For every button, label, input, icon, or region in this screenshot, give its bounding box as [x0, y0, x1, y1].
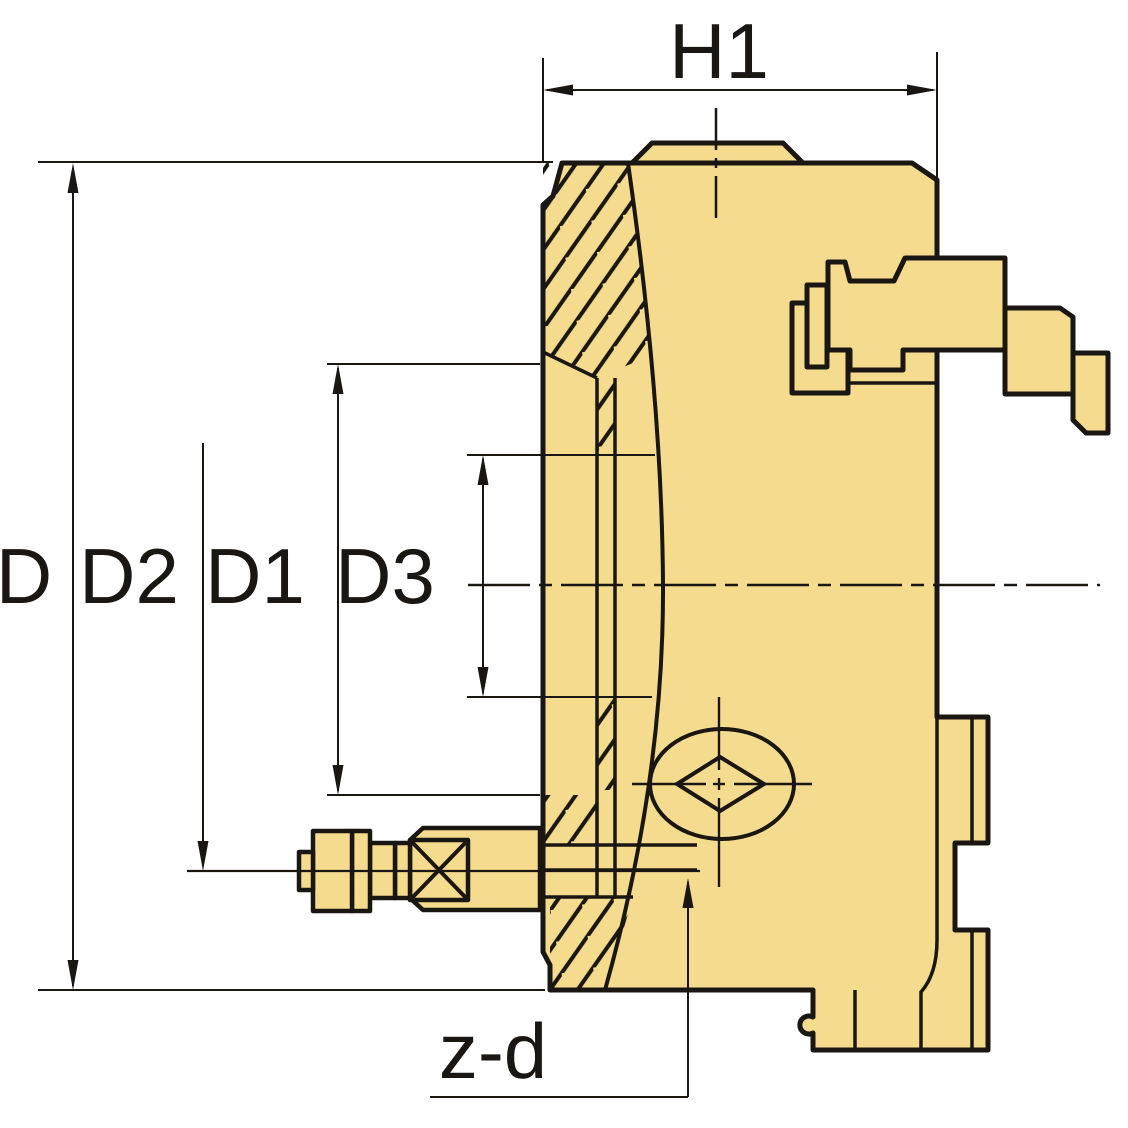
hatch-strip-key — [543, 795, 597, 845]
label-H1: H1 — [669, 7, 769, 95]
hatch-strip-lower — [597, 697, 615, 790]
diagram-canvas: D D2 D1 D3 H1 z-d — [0, 0, 1128, 1128]
label-D2: D2 — [79, 532, 179, 620]
top-jaw-tip — [632, 143, 803, 163]
chuck-cross-section-diagram: D D2 D1 D3 H1 z-d — [0, 0, 1128, 1128]
arrow-up-icon — [478, 455, 489, 485]
label-zd: z-d — [439, 1007, 547, 1095]
jaw-step-3 — [1073, 353, 1108, 433]
jaw-step-2 — [1005, 308, 1073, 394]
chuck-key — [299, 828, 540, 911]
arrow-down-icon — [198, 841, 209, 871]
label-D: D — [0, 532, 52, 620]
arrow-down-icon — [478, 667, 489, 697]
arrow-left-icon — [543, 85, 573, 96]
arrow-down-icon — [68, 960, 79, 990]
arrow-right-icon — [907, 85, 937, 96]
arrow-up-icon — [333, 364, 344, 394]
arrow-down-icon — [333, 765, 344, 795]
arrow-up-icon — [68, 163, 79, 193]
label-D1: D1 — [205, 532, 305, 620]
label-D3: D3 — [335, 532, 435, 620]
dim-D2 — [198, 443, 209, 871]
hatch-strip-upper — [597, 378, 615, 455]
jaw-key-bar — [807, 285, 827, 367]
